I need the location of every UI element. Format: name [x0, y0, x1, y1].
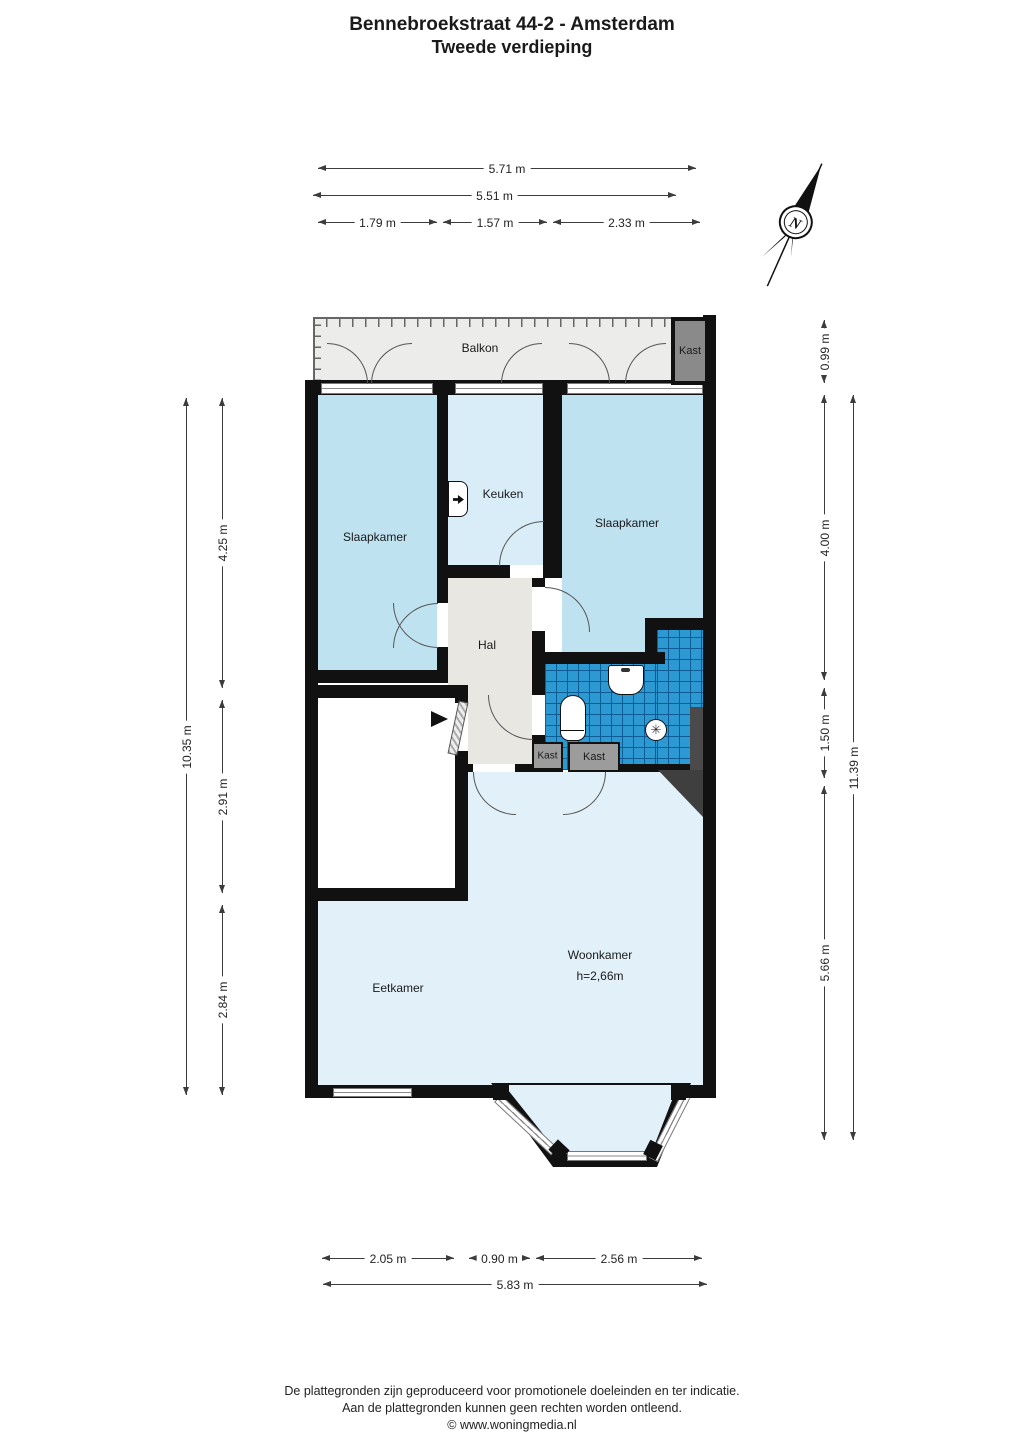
balcony-railing	[313, 317, 671, 327]
dim-bottom-total: 5.83 m	[323, 1284, 707, 1285]
room-slaapkamer-right	[562, 395, 703, 618]
footer-disclaimer: De plattegronden zijn geproduceerd voor …	[0, 1383, 1024, 1434]
dim-top-seg-2: 1.57 m	[443, 222, 547, 223]
label-keuken: Keuken	[483, 487, 524, 501]
page-subtitle: Tweede verdieping	[0, 37, 1024, 58]
closet-label: Kast	[537, 751, 557, 762]
dim-right-seg-3: 5.66 m	[824, 786, 825, 1140]
window-keuken	[455, 383, 543, 394]
dim-right-seg-1: 4.00 m	[824, 395, 825, 680]
balcony-railing-left	[313, 317, 321, 381]
dim-top-seg-1: 1.79 m	[318, 222, 437, 223]
dim-bottom-seg-1: 2.05 m	[322, 1258, 454, 1259]
label-eetkamer: Eetkamer	[372, 981, 423, 995]
bay-window-front	[567, 1151, 647, 1161]
duct-block	[690, 707, 703, 770]
closet-hal-1: Kast	[532, 742, 563, 770]
closet-label: Kast	[583, 751, 605, 763]
dim-right-seg-balkon: 0.99 m	[824, 320, 825, 383]
label-balkon: Balkon	[462, 341, 499, 355]
window-eetkamer	[333, 1088, 412, 1097]
room-woonkamer	[468, 772, 703, 1085]
dim-right-total: 11.39 m	[853, 395, 854, 1140]
dim-top-total-2: 5.51 m	[313, 195, 676, 196]
dim-bottom-seg-3: 2.56 m	[536, 1258, 702, 1259]
toilet-icon	[560, 695, 586, 741]
compass-rose-icon: N	[745, 156, 845, 296]
closet-hal-2: Kast	[568, 742, 620, 772]
closet-balkon: Kast	[671, 317, 709, 385]
label-woonkamer: Woonkamer	[568, 948, 632, 962]
footer-line-1: De plattegronden zijn geproduceerd voor …	[0, 1383, 1024, 1400]
label-slaapkamer-right: Slaapkamer	[595, 516, 659, 530]
label-woonkamer-height: h=2,66m	[576, 969, 623, 983]
dim-right-seg-2: 1.50 m	[824, 688, 825, 778]
floorplan: Kast ✳	[305, 315, 717, 1165]
dim-left-seg-3: 2.84 m	[222, 905, 223, 1095]
label-slaapkamer-left: Slaapkamer	[343, 530, 407, 544]
dim-top-total-1: 5.71 m	[318, 168, 696, 169]
floorplan-page: Bennebroekstraat 44-2 - Amsterdam Tweede…	[0, 0, 1024, 1448]
page-title: Bennebroekstraat 44-2 - Amsterdam	[0, 14, 1024, 36]
window-slaapkamer-left	[321, 383, 433, 394]
sink-icon	[448, 481, 468, 517]
footer-copyright: © www.woningmedia.nl	[0, 1417, 1024, 1434]
dim-bottom-seg-2: 0.90 m	[469, 1258, 530, 1259]
entrance-arrow-icon	[431, 711, 448, 727]
dim-top-seg-3: 2.33 m	[553, 222, 700, 223]
dim-left-seg-1: 4.25 m	[222, 398, 223, 688]
closet-label: Kast	[679, 345, 701, 357]
shower-icon: ✳	[645, 719, 667, 741]
footer-line-2: Aan de plattegronden kunnen geen rechten…	[0, 1400, 1024, 1417]
label-hal: Hal	[478, 638, 496, 652]
washbasin-icon	[608, 665, 644, 695]
dim-left-seg-2: 2.91 m	[222, 700, 223, 893]
dim-left-total: 10.35 m	[186, 398, 187, 1095]
